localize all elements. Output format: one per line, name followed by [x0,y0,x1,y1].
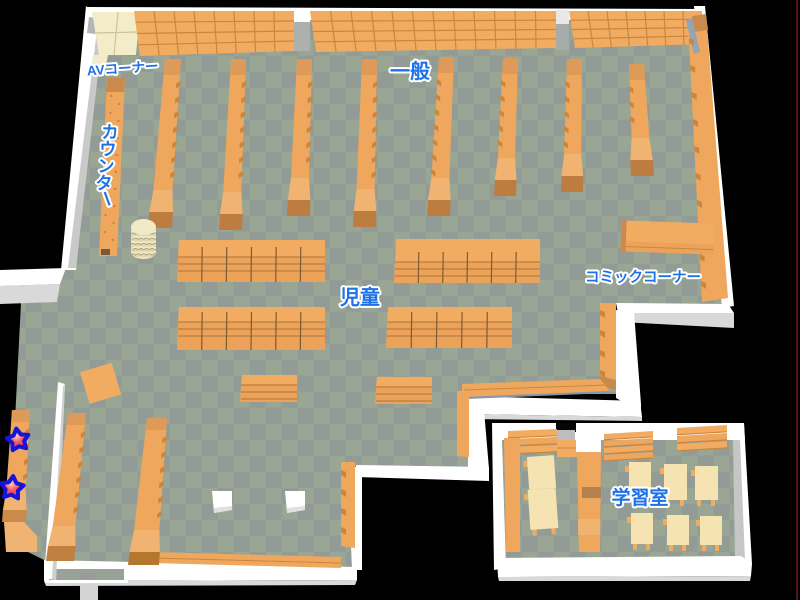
svg-text:コミックコーナー: コミックコーナー [585,269,701,286]
svg-text:児童: 児童 [339,285,380,309]
svg-text:一般: 一般 [390,59,430,83]
svg-text:学習室: 学習室 [611,486,668,509]
